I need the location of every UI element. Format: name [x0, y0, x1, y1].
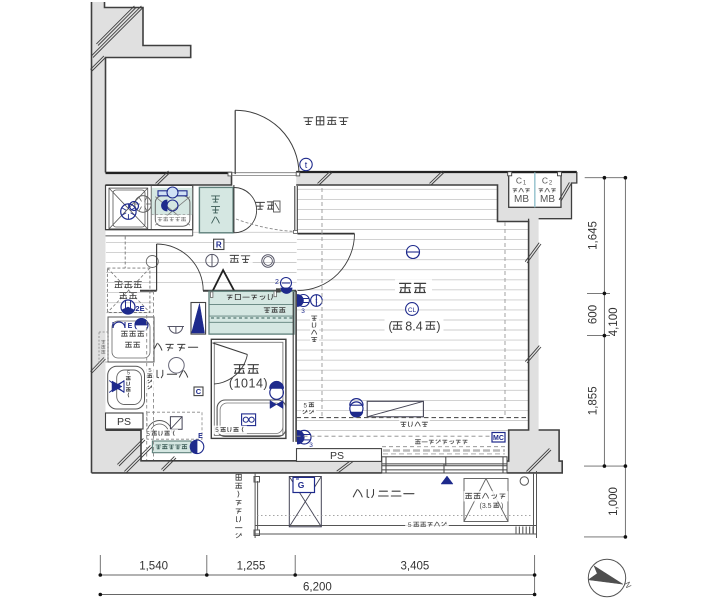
- svg-text:1,000: 1,000: [608, 487, 620, 516]
- svg-text:8.4: 8.4: [405, 320, 422, 334]
- svg-text:1,645: 1,645: [588, 221, 600, 250]
- svg-text:600: 600: [588, 305, 600, 324]
- svg-text:MC: MC: [493, 435, 504, 442]
- svg-text:C: C: [516, 176, 522, 186]
- svg-text:1,855: 1,855: [588, 386, 600, 415]
- svg-text:E: E: [198, 433, 203, 440]
- svg-text:3,405: 3,405: [401, 561, 430, 573]
- svg-text:1,540: 1,540: [139, 561, 168, 573]
- svg-text:3: 3: [309, 442, 313, 449]
- svg-text:MB: MB: [514, 194, 529, 205]
- svg-text:C: C: [196, 387, 202, 396]
- svg-text:(3.5: (3.5: [480, 503, 492, 510]
- svg-text:5: 5: [215, 427, 219, 434]
- svg-text:(1014): (1014): [229, 377, 268, 391]
- svg-text:2: 2: [275, 279, 279, 286]
- svg-text:PS: PS: [117, 416, 131, 428]
- svg-text:4,100: 4,100: [608, 308, 620, 337]
- svg-text:5: 5: [148, 368, 151, 374]
- svg-text:): ): [501, 503, 503, 510]
- svg-text:R: R: [216, 241, 222, 250]
- svg-text:G: G: [298, 480, 305, 490]
- svg-text:PS: PS: [330, 450, 344, 462]
- svg-text:5: 5: [303, 402, 307, 409]
- svg-text:2E: 2E: [135, 304, 144, 313]
- svg-text:): ): [436, 320, 440, 334]
- svg-text:1,255: 1,255: [237, 561, 266, 573]
- svg-text:MB: MB: [540, 194, 555, 205]
- svg-text:t: t: [315, 298, 317, 305]
- svg-text:5: 5: [127, 371, 130, 377]
- svg-text:C: C: [542, 176, 548, 186]
- svg-text:E: E: [128, 323, 133, 330]
- svg-text:CL: CL: [408, 307, 417, 314]
- svg-text:3: 3: [301, 308, 305, 315]
- svg-text:5: 5: [408, 522, 412, 529]
- svg-text:6,200: 6,200: [303, 582, 332, 594]
